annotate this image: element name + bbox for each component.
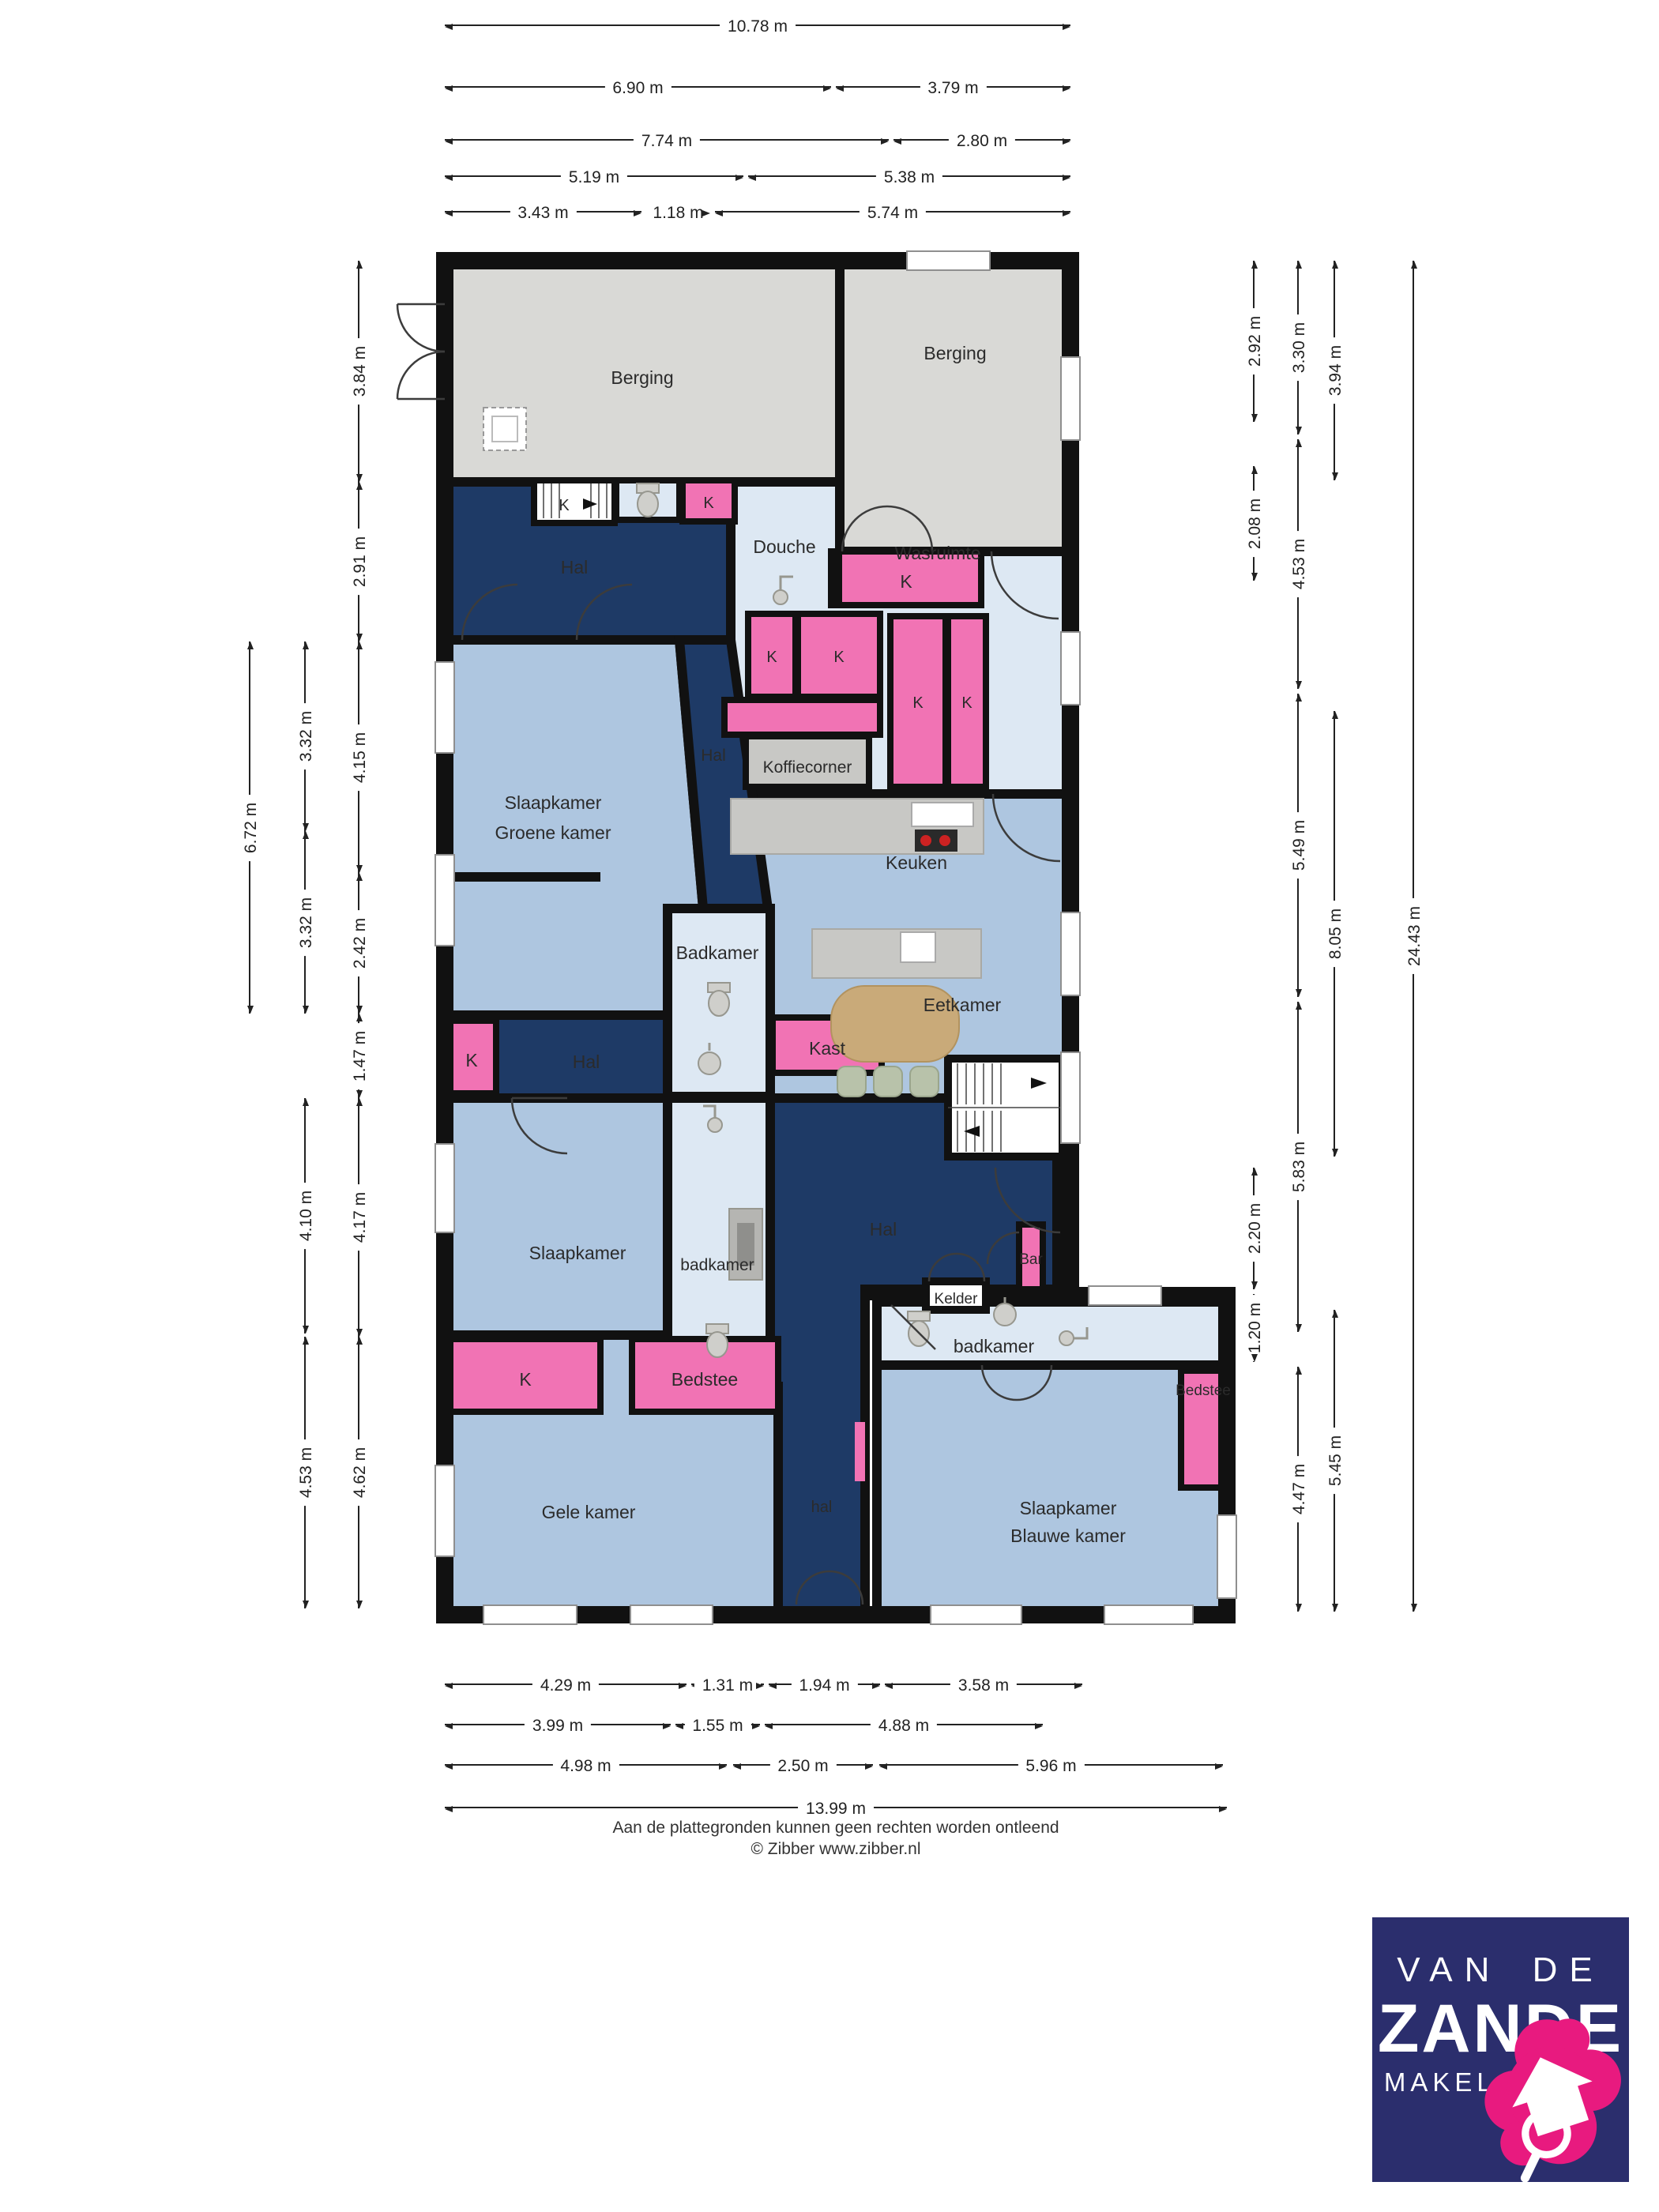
room-label: Hal: [870, 1219, 897, 1240]
window-icon: [630, 1605, 713, 1624]
dimension-line: 1.31 m: [691, 1683, 764, 1685]
dimension-line: 5.49 m: [1297, 694, 1299, 997]
dimension-label: 1.20 m: [1246, 1295, 1265, 1361]
dimension-label: 1.55 m: [684, 1717, 750, 1736]
kitchen-island: [812, 929, 981, 978]
window-icon: [435, 855, 454, 946]
dimension-label: 3.32 m: [297, 889, 316, 955]
room-label: Keuken: [886, 852, 947, 873]
dimension-line: 24.43 m: [1413, 261, 1414, 1612]
dimension-label: 4.47 m: [1290, 1456, 1309, 1522]
dimension-line: 5.96 m: [879, 1764, 1223, 1766]
footer: Aan de plattegronden kunnen geen rechten…: [480, 1817, 1191, 1860]
room-label: Kelder: [935, 1291, 979, 1307]
room-slaapkamer-mid: [445, 1098, 668, 1335]
window-icon: [1104, 1605, 1193, 1624]
room-label: Hal: [561, 557, 589, 577]
dimension-line: 7.74 m: [445, 139, 889, 141]
dimension-label: 7.74 m: [634, 132, 700, 151]
floorplan-page: Berging Berging Douche Wasruimte Hal K K…: [0, 0, 1659, 2212]
dimension-line: 5.83 m: [1297, 1002, 1299, 1332]
room-label: hal: [811, 1499, 833, 1516]
dimension-label: 4.10 m: [297, 1183, 316, 1249]
dimension-line: 1.47 m: [358, 1014, 359, 1098]
dimension-line: 4.15 m: [358, 641, 359, 873]
chair-icon: [910, 1066, 939, 1097]
stairs-center-icon: [948, 1059, 1063, 1157]
dimension-label: 2.91 m: [351, 529, 370, 595]
dimension-line: 4.47 m: [1297, 1367, 1299, 1612]
cabinet-label: K: [961, 694, 972, 712]
dimension-line: 8.05 m: [1334, 711, 1335, 1157]
logo: VAN DE ZANDE MAKELAARDIJ: [1372, 1917, 1629, 2182]
cabinet-label: K: [900, 571, 912, 592]
dimension-label: 10.78 m: [720, 17, 796, 36]
dimension-line: 1.55 m: [675, 1724, 760, 1725]
island-sink: [901, 932, 935, 962]
window-icon: [1061, 357, 1080, 440]
dimension-line: 3.32 m: [304, 641, 306, 831]
dimension-label: 6.90 m: [604, 79, 671, 98]
kitchen-sink: [912, 803, 973, 826]
dimension-line: 5.19 m: [445, 175, 743, 177]
room-label: Eetkamer: [924, 995, 1002, 1015]
room-slaapkamer-blauwe: [877, 1365, 1227, 1615]
logo-emblem-icon: [1465, 2012, 1627, 2182]
dimension-label: 3.94 m: [1326, 337, 1345, 404]
dimension-line: 3.43 m: [445, 211, 641, 213]
dimension-label: 2.20 m: [1246, 1195, 1265, 1262]
dimension-line: 4.17 m: [358, 1098, 359, 1337]
cabinet-label: K: [833, 649, 845, 666]
dimension-line: 4.62 m: [358, 1337, 359, 1608]
dimension-label: 2.80 m: [949, 132, 1015, 151]
cabinet-label: Bedstee: [1176, 1382, 1231, 1399]
dimension-line: 3.32 m: [304, 831, 306, 1014]
dimension-line: 1.20 m: [1253, 1294, 1255, 1362]
toilet-icon: [706, 1324, 728, 1357]
room-label: Badkamer: [676, 942, 759, 963]
dimension-label: 1.18 m: [645, 204, 711, 223]
cabinet-label: K: [465, 1050, 478, 1070]
dimension-line: 3.84 m: [358, 261, 359, 482]
room-label: Wasruimte: [894, 543, 980, 563]
dimension-line: 3.94 m: [1334, 261, 1335, 480]
dimension-line: 2.08 m: [1253, 466, 1255, 581]
dimension-line: 13.99 m: [445, 1807, 1227, 1808]
dimension-line: 2.20 m: [1253, 1168, 1255, 1289]
dimension-line: 4.53 m: [1297, 439, 1299, 689]
cabinet-label: K: [703, 495, 714, 512]
dimension-line: 3.58 m: [885, 1683, 1082, 1685]
cabinet-label: K: [912, 694, 924, 712]
dimension-label: 3.32 m: [297, 703, 316, 769]
dimension-line: 5.38 m: [748, 175, 1070, 177]
dimension-line: 4.10 m: [304, 1098, 306, 1334]
chair-icon: [874, 1066, 902, 1097]
cabinet-label: K: [559, 497, 570, 514]
dimension-line: 10.78 m: [445, 24, 1070, 26]
dimension-label: 4.17 m: [351, 1184, 370, 1251]
dimension-label: 5.49 m: [1290, 812, 1309, 878]
toilet-icon: [637, 483, 659, 517]
dimension-label: 3.58 m: [950, 1676, 1017, 1695]
window-icon: [435, 1144, 454, 1232]
dimension-label: 4.53 m: [297, 1439, 316, 1506]
cabinet-label: Bar: [1019, 1251, 1043, 1268]
dimension-label: 3.84 m: [351, 338, 370, 404]
room-label: Douche: [753, 536, 815, 557]
hatch-square: [483, 408, 526, 450]
cabinet-label: Bedstee: [671, 1369, 738, 1390]
dimension-line: 1.18 m: [646, 211, 710, 213]
window-icon: [1061, 632, 1080, 705]
dimension-line: 4.53 m: [304, 1337, 306, 1608]
room-label: Blauwe kamer: [1010, 1525, 1126, 1546]
dimension-label: 2.08 m: [1246, 490, 1265, 556]
room-label: badkamer: [680, 1256, 754, 1274]
window-icon: [1061, 912, 1080, 995]
dimension-label: 13.99 m: [798, 1800, 874, 1819]
dimension-label: 5.19 m: [561, 168, 627, 187]
window-icon: [1089, 1286, 1161, 1305]
dimension-label: 6.72 m: [242, 794, 261, 860]
dimension-label: 3.30 m: [1290, 314, 1309, 381]
dimension-line: 1.94 m: [769, 1683, 880, 1685]
room-label: Gele kamer: [542, 1502, 636, 1522]
dimension-line: 2.42 m: [358, 873, 359, 1014]
dimension-line: 5.45 m: [1334, 1310, 1335, 1612]
room-label: badkamer: [954, 1336, 1035, 1356]
dimension-line: 3.30 m: [1297, 261, 1299, 434]
dimension-line: 2.50 m: [733, 1764, 873, 1766]
dimension-label: 3.99 m: [525, 1717, 591, 1736]
dimension-line: 2.91 m: [358, 482, 359, 641]
dimension-label: 5.96 m: [1018, 1757, 1084, 1776]
room-label: Koffiecorner: [763, 758, 852, 777]
room-label: Berging: [924, 343, 986, 363]
dimension-label: 24.43 m: [1405, 898, 1424, 974]
room-label: Slaapkamer: [529, 1243, 626, 1263]
dimension-label: 4.88 m: [871, 1717, 937, 1736]
room-label: Hal: [701, 747, 726, 765]
window-icon: [931, 1605, 1021, 1624]
dimension-label: 4.53 m: [1290, 531, 1309, 597]
cabinet-label: Kast: [809, 1038, 846, 1059]
dimension-line: 3.79 m: [836, 86, 1070, 88]
dimension-label: 2.42 m: [351, 910, 370, 976]
window-icon: [1061, 1052, 1080, 1143]
logo-line-1: VAN DE: [1372, 1951, 1629, 1990]
dimension-line: 4.88 m: [765, 1724, 1043, 1725]
window-icon: [1217, 1515, 1236, 1598]
dimension-label: 2.50 m: [769, 1757, 836, 1776]
dimension-label: 4.15 m: [351, 724, 370, 790]
room-label: Hal: [573, 1051, 600, 1072]
dimension-label: 5.45 m: [1326, 1428, 1345, 1494]
dimension-label: 5.83 m: [1290, 1134, 1309, 1200]
dimension-line: 6.90 m: [445, 86, 831, 88]
dimension-line: 6.72 m: [249, 641, 250, 1014]
dimension-label: 2.92 m: [1246, 308, 1265, 374]
window-icon: [435, 662, 454, 753]
dimension-line: 4.98 m: [445, 1764, 727, 1766]
window-icon: [435, 1465, 454, 1556]
cabinet-label: K: [766, 649, 777, 666]
chair-icon: [837, 1066, 866, 1097]
dimension-line: 2.80 m: [893, 139, 1070, 141]
dimension-label: 8.05 m: [1326, 901, 1345, 967]
toilet-icon: [708, 983, 730, 1016]
cabinet-strip: [724, 700, 880, 735]
stairs-top-icon: [534, 480, 615, 523]
room-label: Slaapkamer: [1020, 1498, 1117, 1518]
footer-credit: © Zibber www.zibber.nl: [480, 1838, 1191, 1860]
footer-disclaimer: Aan de plattegronden kunnen geen rechten…: [480, 1817, 1191, 1838]
dimension-label: 4.62 m: [351, 1439, 370, 1506]
room-label: Groene kamer: [495, 822, 611, 843]
dimension-line: 5.74 m: [715, 211, 1070, 213]
window-icon: [483, 1605, 577, 1624]
dimension-label: 4.98 m: [552, 1757, 619, 1776]
dimension-label: 3.43 m: [510, 204, 576, 223]
room-label: Berging: [611, 367, 673, 388]
dimension-label: 5.38 m: [876, 168, 942, 187]
dimension-line: 4.29 m: [445, 1683, 687, 1685]
floorplan-drawing: Berging Berging Douche Wasruimte Hal K K…: [0, 0, 1659, 2212]
dimension-label: 4.29 m: [532, 1676, 599, 1695]
dimension-label: 3.79 m: [920, 79, 986, 98]
dimension-label: 1.31 m: [694, 1676, 761, 1695]
dimension-label: 1.47 m: [351, 1022, 370, 1089]
dimension-line: 3.99 m: [445, 1724, 671, 1725]
cabinet-label: K: [519, 1369, 532, 1390]
dimension-label: 5.74 m: [860, 204, 926, 223]
window-icon: [907, 251, 990, 270]
room-label: Slaapkamer: [505, 792, 602, 813]
dimension-label: 1.94 m: [791, 1676, 857, 1695]
cabinet-sliver: [855, 1422, 865, 1481]
dimension-line: 2.92 m: [1253, 261, 1255, 422]
